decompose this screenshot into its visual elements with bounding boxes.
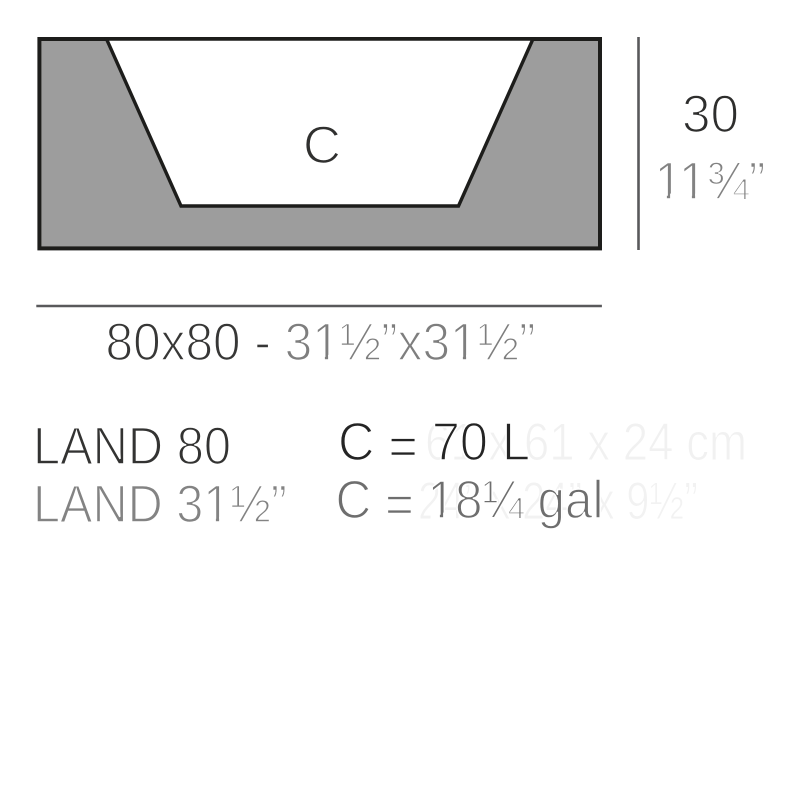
svg-text:LAND 80: LAND 80 bbox=[33, 417, 231, 476]
svg-text:C: C bbox=[303, 116, 341, 175]
svg-text:LAND 31½”: LAND 31½” bbox=[33, 475, 287, 534]
svg-text:C = 18¼ gal: C = 18¼ gal bbox=[336, 470, 604, 535]
svg-text:C = 70 L: C = 70 L bbox=[338, 412, 530, 477]
svg-text:30: 30 bbox=[682, 85, 739, 144]
svg-text:80x80 - 31½”x31½”: 80x80 - 31½”x31½” bbox=[106, 313, 536, 372]
svg-text:11¾”: 11¾” bbox=[655, 152, 766, 211]
